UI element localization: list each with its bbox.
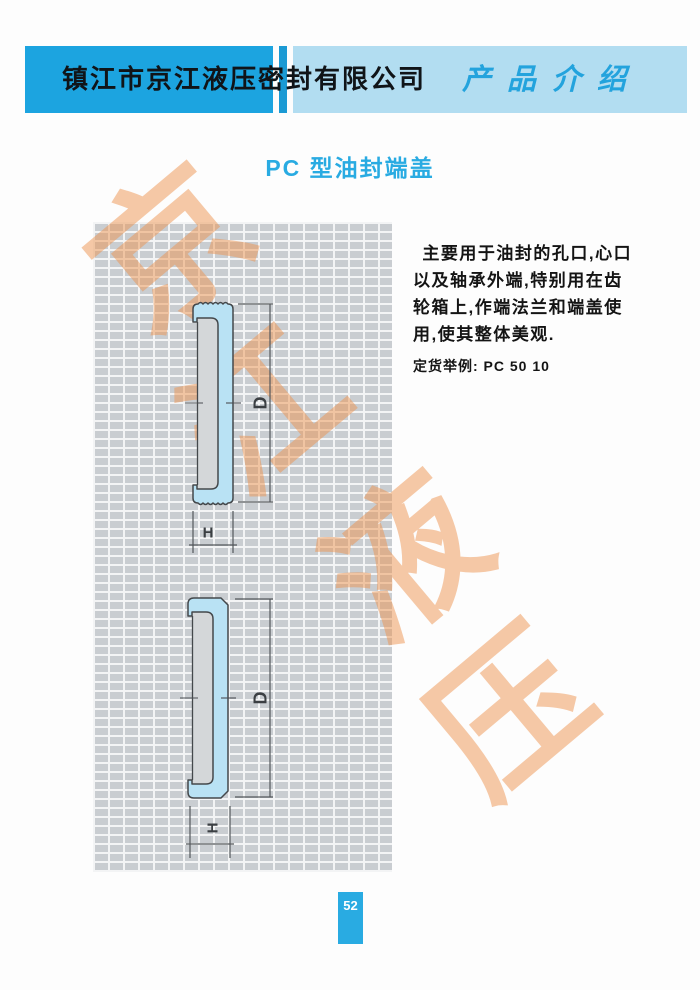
order-example: 定货举例: PC 50 10 [413, 356, 550, 376]
seal-cross-section-serrated [185, 303, 241, 505]
description-line: 用,使其整体美观. [413, 321, 669, 348]
page-number-badge: 52 [338, 892, 363, 944]
description-paragraph: 主要用于油封的孔口,心口 以及轴承外端,特别用在齿 轮箱上,作端法兰和端盖使 用… [413, 240, 669, 348]
section-title: 产品介绍 [462, 46, 642, 113]
dim-label-d-bottom: D [251, 692, 272, 705]
description-line: 以及轴承外端,特别用在齿 [413, 267, 669, 294]
catalog-page: 镇江市京江液压密封有限公司 产品介绍 PC 型油封端盖 京 江 液 压 [0, 0, 700, 990]
page-title: PC 型油封端盖 [0, 149, 700, 183]
dim-label-d-top: D [251, 397, 272, 410]
company-name: 镇江市京江液压密封有限公司 [62, 46, 426, 113]
seal-cross-section-smooth [180, 598, 236, 798]
dim-label-h-top: H [203, 525, 214, 542]
description-line: 轮箱上,作端法兰和端盖使 [413, 294, 669, 321]
dim-label-h-bottom: H [205, 823, 222, 834]
description-line: 主要用于油封的孔口,心口 [413, 240, 669, 267]
